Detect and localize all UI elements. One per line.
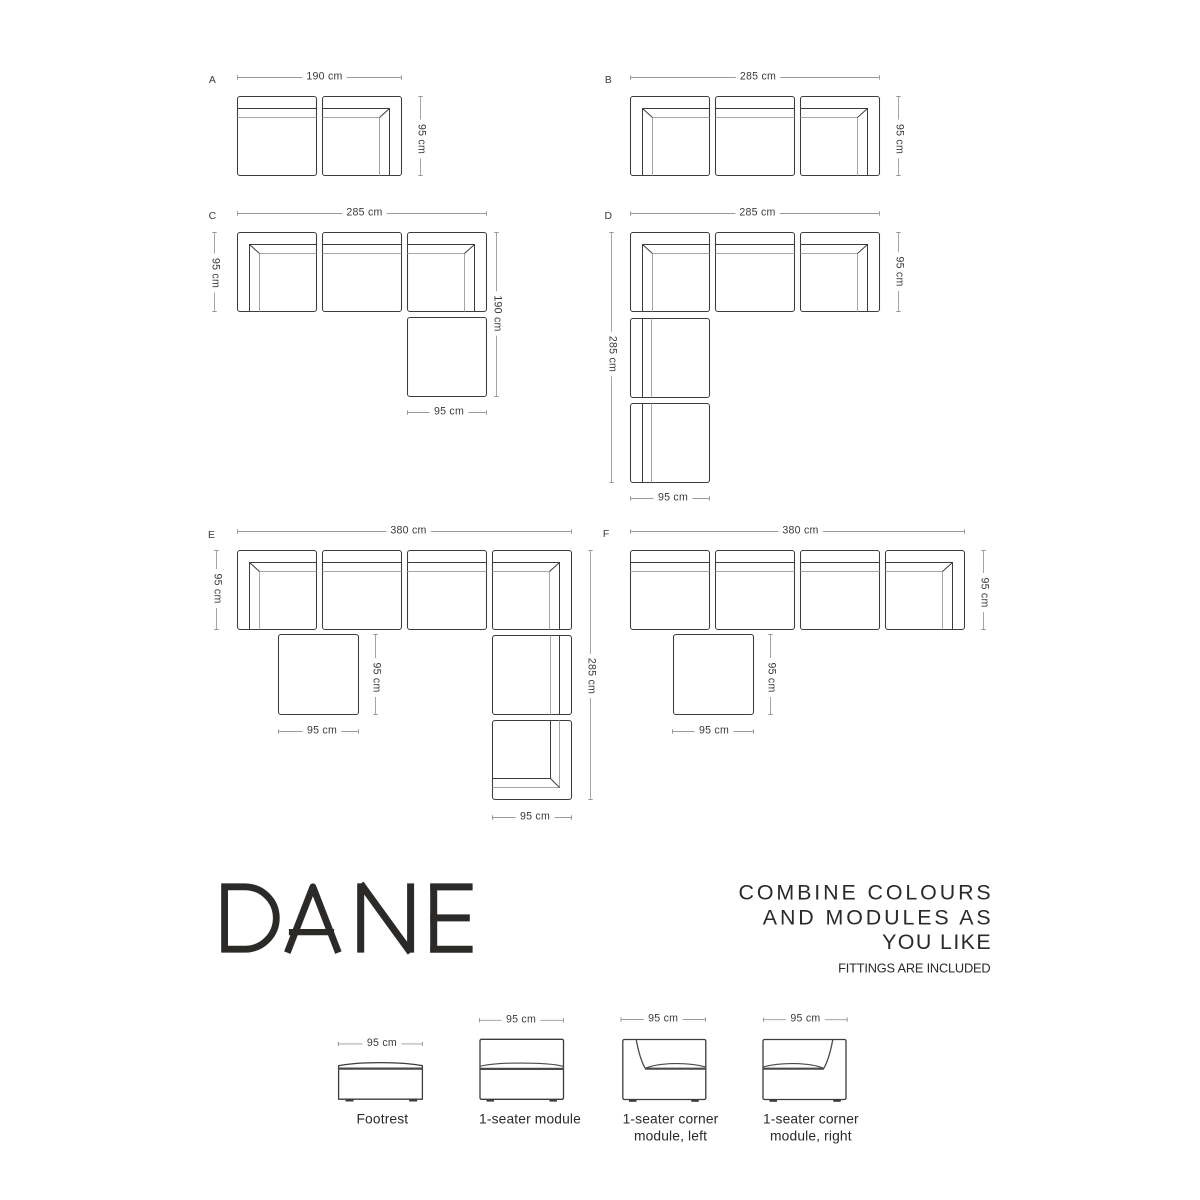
svg-text:190 cm: 190 cm: [491, 295, 503, 331]
svg-text:285 cm: 285 cm: [585, 658, 597, 694]
svg-text:380 cm: 380 cm: [782, 525, 818, 537]
svg-text:95 cm: 95 cm: [699, 725, 729, 737]
svg-text:module, right: module, right: [770, 1129, 852, 1144]
svg-text:YOU LIKE: YOU LIKE: [882, 930, 992, 954]
svg-text:D: D: [605, 211, 613, 222]
svg-text:95 cm: 95 cm: [893, 256, 905, 286]
svg-text:95 cm: 95 cm: [658, 492, 688, 504]
svg-text:AND MODULES AS: AND MODULES AS: [763, 905, 994, 929]
svg-text:285 cm: 285 cm: [606, 336, 618, 372]
svg-text:95 cm: 95 cm: [307, 725, 337, 737]
svg-text:F: F: [603, 529, 609, 540]
svg-text:A: A: [209, 75, 216, 86]
svg-text:1-seater module: 1-seater module: [479, 1112, 581, 1127]
svg-text:285 cm: 285 cm: [740, 71, 776, 83]
svg-text:95 cm: 95 cm: [648, 1013, 678, 1025]
svg-text:95 cm: 95 cm: [211, 573, 223, 603]
svg-text:380 cm: 380 cm: [390, 525, 426, 537]
svg-text:285 cm: 285 cm: [346, 207, 382, 219]
svg-text:95 cm: 95 cm: [790, 1013, 820, 1025]
svg-text:Footrest: Footrest: [356, 1112, 408, 1127]
svg-text:FITTINGS ARE INCLUDED: FITTINGS ARE INCLUDED: [838, 961, 990, 976]
svg-text:B: B: [605, 75, 612, 86]
svg-text:95 cm: 95 cm: [434, 406, 464, 418]
svg-text:module, left: module, left: [634, 1129, 707, 1144]
svg-text:95 cm: 95 cm: [506, 1013, 536, 1025]
svg-text:1-seater corner: 1-seater corner: [623, 1112, 719, 1127]
svg-text:95 cm: 95 cm: [893, 124, 905, 154]
svg-text:95 cm: 95 cm: [415, 124, 427, 154]
svg-text:95 cm: 95 cm: [978, 577, 990, 607]
svg-text:COMBINE COLOURS: COMBINE COLOURS: [739, 880, 994, 904]
svg-text:C: C: [209, 211, 217, 222]
svg-text:95 cm: 95 cm: [520, 811, 550, 823]
svg-text:95 cm: 95 cm: [367, 1037, 397, 1049]
svg-text:1-seater corner: 1-seater corner: [763, 1112, 859, 1127]
svg-text:285 cm: 285 cm: [739, 207, 775, 219]
svg-text:95 cm: 95 cm: [370, 662, 382, 692]
svg-text:E: E: [208, 530, 215, 541]
svg-text:190 cm: 190 cm: [306, 71, 342, 83]
svg-text:95 cm: 95 cm: [209, 258, 221, 288]
svg-text:95 cm: 95 cm: [765, 662, 777, 692]
